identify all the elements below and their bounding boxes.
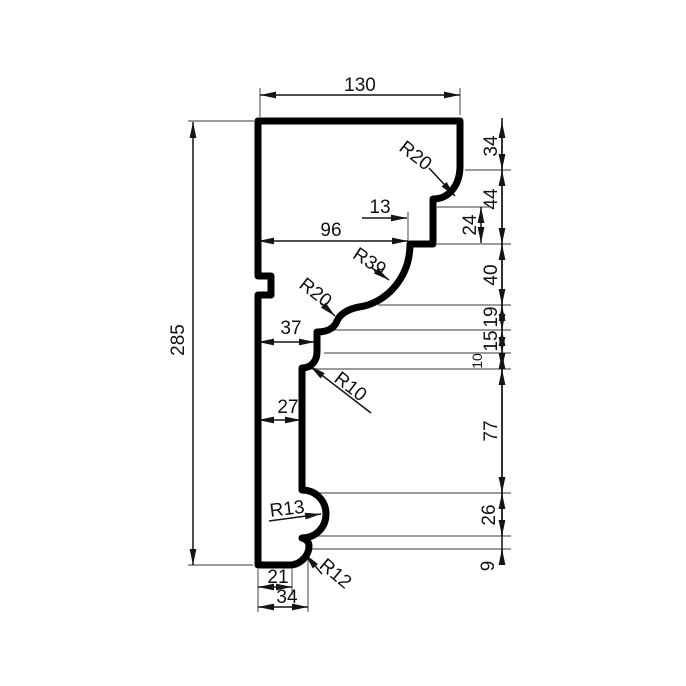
dimension-arrow [499,477,506,493]
dimension-label-37: 37 [280,318,301,339]
dimension-label-13: 13 [369,197,390,218]
dimension-label-19: 19 [481,306,502,327]
dimension-label-26: 26 [479,504,500,525]
dimension-arrow [499,289,506,305]
dimension-label-44: 44 [481,188,502,210]
radius-label-R13: R13 [269,497,306,522]
dimension-label-130: 130 [344,75,376,96]
dimension-arrow [499,244,506,260]
dimension-label-96: 96 [320,220,341,241]
dimension-arrow [190,122,197,138]
dimension-label-24: 24 [460,214,481,236]
dimension-label-285: 285 [168,324,189,356]
dimension-arrow [299,339,315,346]
dimension-label-21: 21 [267,567,288,588]
dimension-arrow [392,238,408,245]
dimension-arrow [190,549,197,565]
dimension-arrow [499,170,506,186]
drawing-page: 1302859613372721342434444019151077269R20… [0,0,686,686]
dimension-arrow [260,92,276,99]
dimension-arrow [391,215,407,222]
dimension-label-34: 34 [276,587,298,608]
radius-label-R12: R12 [315,555,355,593]
dimension-label-10: 10 [469,353,485,369]
dimension-label-15: 15 [481,330,502,351]
dimension-arrow [499,369,506,385]
radius-label-R20: R20 [295,274,335,312]
dimension-arrow [258,604,274,611]
dimension-label-40: 40 [481,264,502,285]
dimension-label-77: 77 [481,420,502,441]
dimension-label-27: 27 [277,397,298,418]
technical-drawing: 1302859613372721342434444019151077269R20… [0,0,686,686]
dimension-label-34: 34 [481,135,502,157]
dimension-label-9: 9 [478,561,499,572]
radius-label-R10: R10 [330,368,370,406]
dimension-arrow [444,92,460,99]
dimension-arrow [499,549,506,565]
dimension-arrow [499,228,506,244]
